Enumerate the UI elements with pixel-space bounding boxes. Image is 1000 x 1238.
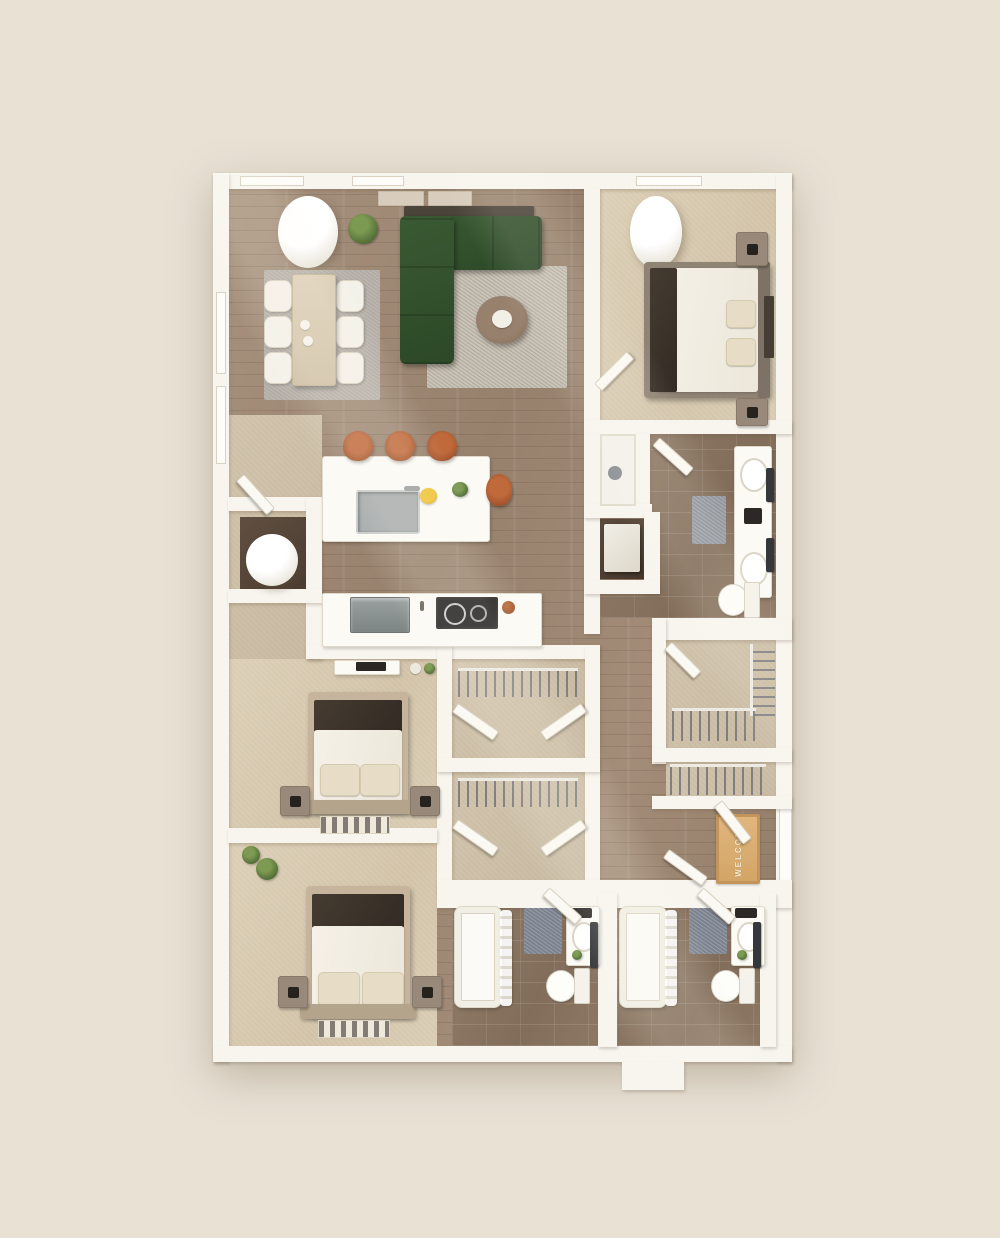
coffee-table-tray (492, 310, 512, 328)
walkin-hanger-rod-right (750, 644, 775, 716)
bed3-headboard (300, 1004, 416, 1019)
shower-drain (608, 466, 622, 480)
ceiling-vent-1 (378, 191, 424, 206)
island-faucet (404, 486, 420, 491)
wall-kitchen-back (306, 645, 600, 659)
bed1-pillow-1 (726, 300, 756, 328)
counter-bottles (420, 601, 424, 611)
lamp-icon (747, 407, 758, 418)
dining-table-bowl-2 (303, 336, 313, 346)
dining-chair-4 (336, 280, 364, 312)
bed2-nightstand-left (280, 786, 310, 816)
walkin-hanger-rod-bottom (672, 708, 756, 741)
wall-living-bed1 (584, 188, 600, 428)
bar-stool-1 (343, 431, 373, 461)
dining-chair-3 (264, 352, 292, 384)
hall-closet-a-rod (458, 668, 578, 697)
wall-walkin-bottom (652, 748, 792, 762)
bed2-pillow-1 (320, 764, 360, 796)
bed2-pillow-2 (360, 764, 400, 796)
wall-shower-bottom (584, 504, 652, 518)
bedroom2-tv (356, 662, 386, 671)
bed1-wall-art (764, 296, 774, 358)
bathtub-3 (619, 906, 667, 1008)
bath3-toilet-tank (739, 968, 755, 1004)
lamp-icon (290, 796, 301, 807)
island-sink (356, 490, 420, 534)
cooktop-burner-2 (470, 605, 487, 622)
bath-towel-2 (766, 538, 774, 572)
bar-stool-2 (385, 431, 415, 461)
bed2-nightstand-right (410, 786, 440, 816)
bath2-toilet-bowl (546, 970, 576, 1002)
bed3-pillow-1 (318, 972, 360, 1006)
window-top-bedroom1 (636, 176, 702, 186)
dining-chair-5 (336, 316, 364, 348)
bath3-tray (735, 908, 757, 918)
bathtub-2 (454, 906, 502, 1008)
bed3-dark-throw (312, 894, 404, 928)
potted-plant-living (348, 214, 378, 244)
hall-closet-b-rod (458, 778, 578, 807)
lamp-icon (747, 244, 758, 255)
bath3-towel (753, 922, 761, 968)
wall-bath-left (584, 434, 600, 634)
bed1-nightstand-top (736, 232, 768, 266)
wall-nook-right (306, 497, 322, 659)
shower-curtain-3 (665, 910, 677, 1006)
bedroom3-plant-2 (256, 858, 278, 880)
bar-stool-3 (427, 431, 457, 461)
bedroom2-decor-2 (424, 663, 435, 674)
dining-chair-2 (264, 316, 292, 348)
sofa-sectional-left-arm (400, 216, 454, 364)
linen-closet-hanger-rod (670, 764, 766, 795)
bed2-rug (320, 816, 390, 834)
bath2-plant (572, 950, 582, 960)
floor-plan-canvas: WELCOME (0, 0, 1000, 1238)
bed2-dark-throw (314, 700, 402, 732)
structural-column-living (278, 196, 338, 268)
kettle (502, 601, 515, 614)
vanity-tray (744, 508, 762, 524)
structural-column-bedroom1 (630, 196, 682, 268)
bath2-toilet-tank (574, 968, 590, 1004)
wall-baths-divider (598, 893, 617, 1047)
bed3-nightstand-right (412, 976, 442, 1008)
bed3-rug (318, 1020, 390, 1038)
window-top-living-2 (352, 176, 404, 186)
vanity-sink-1 (740, 458, 768, 492)
ceiling-vent-2 (428, 191, 472, 206)
wall-bath-bottom (652, 618, 792, 640)
wall-walkin-left (652, 618, 666, 764)
dining-chair-6 (336, 352, 364, 384)
bar-stool-4 (486, 474, 512, 506)
bath2-towel (590, 922, 598, 968)
wall-utility-bottom (584, 580, 660, 594)
primary-bath-rug (692, 496, 726, 544)
bed3-nightstand-left (278, 976, 308, 1008)
water-heater (246, 534, 298, 586)
bedroom2-decor-1 (410, 663, 421, 674)
dining-table (292, 274, 336, 386)
cooktop-burner-1 (444, 603, 466, 625)
primary-toilet-tank (744, 582, 760, 618)
bath3-toilet-bowl (711, 970, 741, 1002)
window-top-living-1 (240, 176, 304, 186)
bed1-nightstand-bottom (736, 398, 768, 426)
bath3-plant (737, 950, 747, 960)
entry-door-threshold (779, 798, 792, 882)
window-left-2 (216, 386, 226, 464)
lamp-icon (420, 796, 431, 807)
wall-closet-divider (437, 758, 600, 772)
lamp-icon (288, 987, 299, 998)
island-plant (452, 482, 468, 497)
lamp-icon (422, 987, 433, 998)
lemon-bowl (420, 488, 437, 504)
shower-curtain-2 (500, 910, 512, 1006)
bed1-pillow-2 (726, 338, 756, 366)
bath2-rug (524, 908, 562, 954)
dining-table-bowl-1 (300, 320, 310, 330)
window-left-1 (216, 292, 226, 374)
wall-nook-bottom (228, 589, 322, 603)
refrigerator (350, 597, 410, 633)
wall-stub-bottom (622, 1062, 684, 1090)
wall-outer-bottom (213, 1046, 792, 1062)
vanity-sink-2 (740, 552, 768, 586)
bed3-pillow-2 (362, 972, 404, 1006)
bath-towel-1 (766, 468, 774, 502)
bed1-dark-throw (650, 268, 677, 392)
dining-chair-1 (264, 280, 292, 312)
bed2-headboard (302, 800, 414, 814)
washer-dryer-unit (604, 524, 640, 572)
